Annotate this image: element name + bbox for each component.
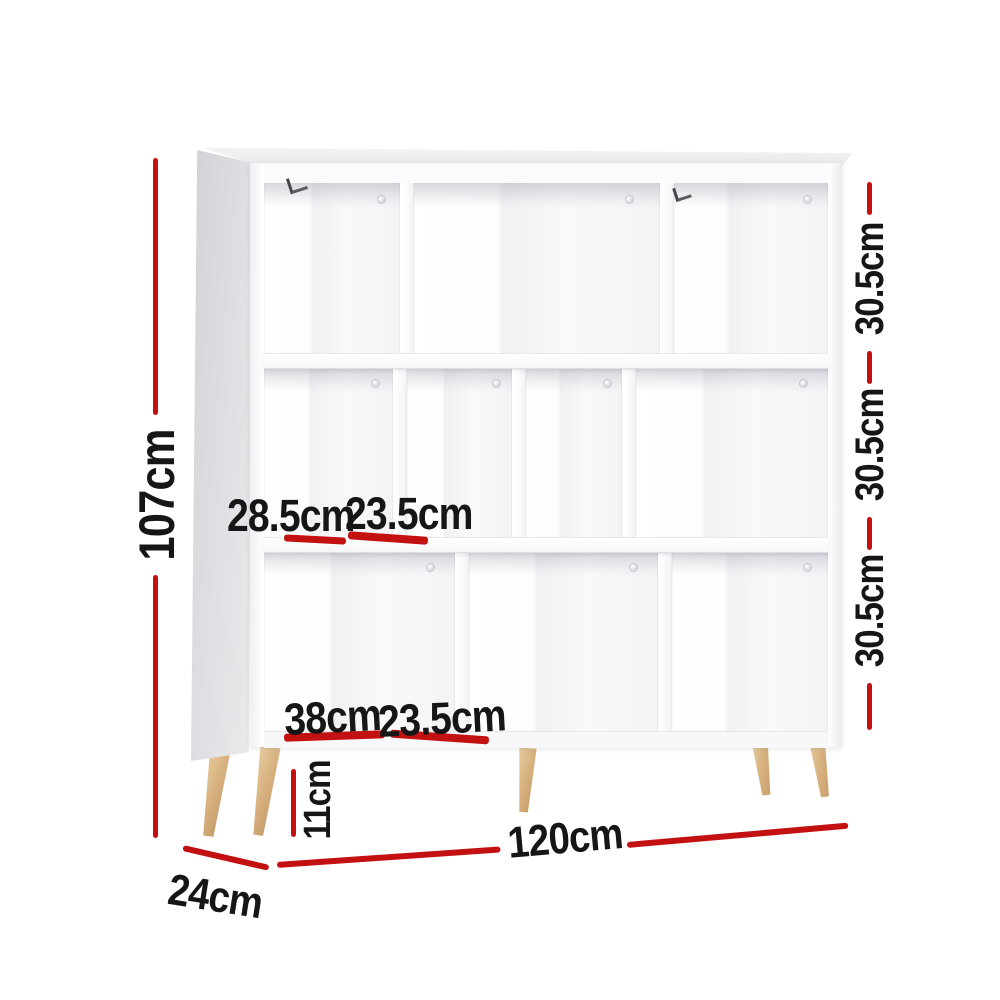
- row-height-dash: [867, 517, 872, 550]
- width-dim-line-right: [627, 823, 849, 848]
- leg-height-label: 11cm: [299, 766, 335, 839]
- vertical-divider: [660, 183, 674, 353]
- height-dim-label: 107cm: [132, 421, 182, 569]
- dimension-diagram: 107cm 30.5cm 30.5cm 30.5cm 28.5cm 23.5cm…: [0, 0, 1000, 1000]
- shelf-row-1: [264, 183, 828, 353]
- vertical-divider: [512, 367, 526, 537]
- middle-compartment-label-2: 23.5cm: [345, 491, 473, 536]
- bottom-compartment-label-1: 38cm: [283, 692, 382, 742]
- row-height-label-3: 30.5cm: [850, 563, 890, 667]
- compartment: [674, 183, 828, 353]
- vertical-divider: [658, 551, 672, 731]
- row-height-dash: [867, 182, 872, 215]
- horizontal-shelf: [264, 353, 828, 369]
- row-height-label-1: 30.5cm: [850, 231, 890, 335]
- cabinet-left-side-panel: [191, 147, 253, 761]
- depth-dim-line: [182, 845, 269, 871]
- cabinet-top-band: [264, 163, 828, 184]
- leg-height-line: [291, 769, 296, 837]
- vertical-divider: [622, 367, 636, 537]
- height-dim-line-upper: [153, 158, 158, 415]
- width-dim-line-left: [277, 846, 501, 868]
- leg: [514, 747, 536, 813]
- cabinet-right-wall: [828, 163, 842, 747]
- compartment: [414, 183, 660, 353]
- cabinet-left-wall: [250, 163, 264, 747]
- compartment: [264, 183, 400, 353]
- height-dim-line-lower: [153, 575, 158, 838]
- leg: [248, 746, 281, 838]
- row-height-label-2: 30.5cm: [850, 397, 890, 501]
- depth-dim-label: 24cm: [165, 868, 265, 926]
- cabinet-front: [250, 163, 842, 747]
- row-height-dash: [867, 351, 872, 384]
- compartment: [526, 367, 622, 537]
- vertical-divider: [400, 183, 414, 353]
- middle-compartment-label-1: 28.5cm: [227, 493, 355, 538]
- compartment: [672, 551, 828, 731]
- bottom-compartment-label-2: 23.5cm: [377, 692, 507, 744]
- compartment: [636, 367, 828, 537]
- row-height-dash: [867, 683, 872, 730]
- width-dim-label: 120cm: [506, 812, 624, 866]
